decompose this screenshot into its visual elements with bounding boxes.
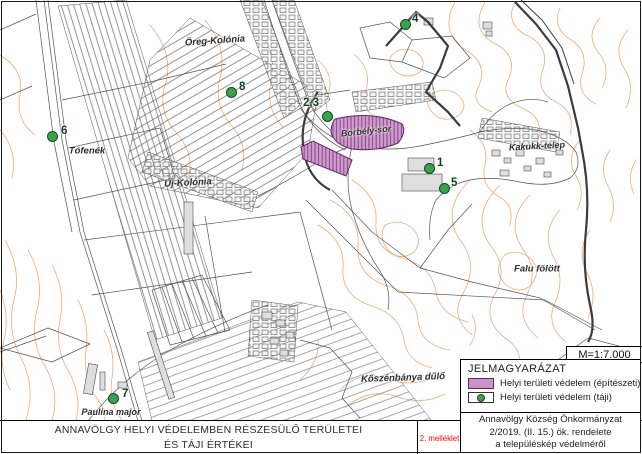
place-label: Paulina major (81, 407, 140, 417)
attribution-line-2: 2/2019. (II. 15.) ök. rendelete (490, 427, 612, 439)
attribution-line-3: a településkép védelméről (495, 439, 605, 451)
parcel-strip-areas (58, 0, 560, 421)
protected-site-number: 7 (122, 388, 128, 400)
protected-site-number: 6 (61, 125, 67, 137)
legend-point-dot (477, 394, 485, 402)
annex-label: 2. melléklet (420, 433, 460, 443)
protected-site-number: 4 (412, 13, 418, 25)
place-label: Tófenék (69, 146, 105, 157)
protected-site-number: 8 (239, 81, 245, 93)
map-title-line-1: ANNAVÖLGY HELYI VÉDELEMBEN RÉSZESÜLŐ TER… (55, 423, 363, 437)
legend: JELMAGYARÁZAT Helyi területi védelem (ép… (460, 359, 641, 453)
settlement-boundary-inner (521, 0, 574, 84)
protected-site-marker-5 (439, 183, 450, 194)
protected-site-marker-4 (400, 19, 411, 30)
legend-area-swatch (468, 378, 494, 389)
map-sheet: 482,36157Öreg-KolóniaTófenékÚj-KolóniaBo… (0, 0, 642, 454)
legend-body: JELMAGYARÁZAT Helyi területi védelem (ép… (461, 360, 640, 412)
legend-item-label: Helyi területi védelem (építészeti) (500, 378, 640, 389)
annex-box: 2. melléklet (418, 420, 461, 454)
legend-rows: Helyi területi védelem (építészeti)Helyi… (468, 378, 635, 403)
place-label: Falu fölött (514, 264, 560, 275)
protected-site-marker-2,3 (322, 111, 333, 122)
legend-item: Helyi területi védelem (táji) (468, 392, 635, 403)
map-title-line-2: ÉS TÁJI ÉRTÉKEI (164, 438, 253, 452)
protected-site-marker-8 (226, 87, 237, 98)
legend-title: JELMAGYARÁZAT (468, 363, 635, 375)
protected-site-number: 5 (451, 177, 457, 189)
legend-item: Helyi területi védelem (építészeti) (468, 378, 635, 389)
protected-site-marker-1 (424, 163, 435, 174)
map-title: ANNAVÖLGY HELYI VÉDELEMBEN RÉSZESÜLŐ TER… (0, 420, 418, 454)
protected-site-marker-6 (47, 131, 58, 142)
map-canvas (0, 0, 642, 421)
attribution: Annavölgy Község Önkormányzat 2/2019. (I… (461, 412, 640, 453)
protected-site-number: 1 (437, 157, 443, 169)
legend-item-label: Helyi területi védelem (táji) (500, 392, 612, 403)
protected-site-number: 2,3 (303, 97, 319, 109)
legend-point-swatch (468, 392, 494, 403)
attribution-line-1: Annavölgy Község Önkormányzat (479, 414, 622, 426)
protected-site-marker-7 (108, 393, 119, 404)
